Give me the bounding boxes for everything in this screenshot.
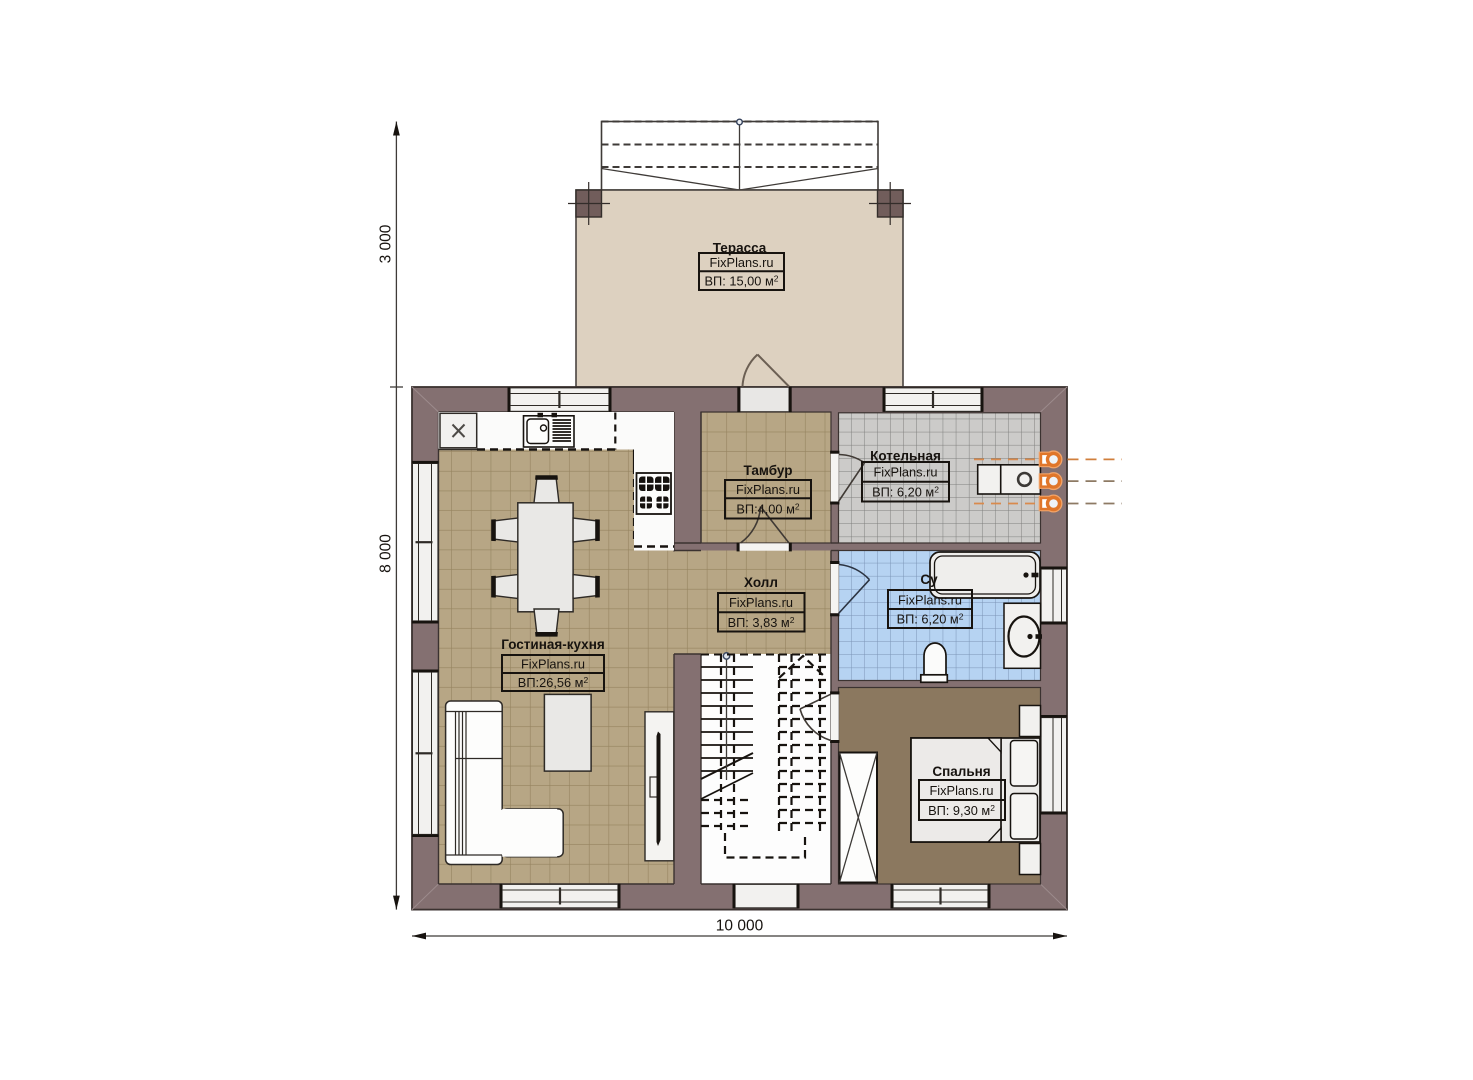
svg-text:FixPlans.ru: FixPlans.ru bbox=[873, 465, 937, 480]
svg-text:ВП: 9,30 м2: ВП: 9,30 м2 bbox=[928, 803, 995, 818]
svg-text:FixPlans.ru: FixPlans.ru bbox=[729, 595, 793, 610]
svg-text:Холл: Холл bbox=[744, 575, 778, 590]
svg-text:Спальня: Спальня bbox=[932, 764, 990, 779]
svg-text:FixPlans.ru: FixPlans.ru bbox=[521, 657, 585, 672]
svg-text:ВП: 6,20 м2: ВП: 6,20 м2 bbox=[897, 611, 964, 626]
svg-text:Тамбур: Тамбур bbox=[744, 463, 793, 478]
svg-text:ВП: 3,83 м2: ВП: 3,83 м2 bbox=[728, 615, 795, 630]
svg-text:8 000: 8 000 bbox=[378, 534, 395, 573]
svg-text:ВП: 15,00 м2: ВП: 15,00 м2 bbox=[705, 274, 779, 289]
svg-text:FixPlans.ru: FixPlans.ru bbox=[736, 482, 800, 497]
svg-text:ВП:4,00 м2: ВП:4,00 м2 bbox=[736, 501, 800, 516]
svg-text:3 000: 3 000 bbox=[378, 224, 395, 263]
svg-text:10 000: 10 000 bbox=[716, 918, 764, 935]
svg-text:FixPlans.ru: FixPlans.ru bbox=[929, 783, 993, 798]
svg-text:Су: Су bbox=[920, 572, 938, 587]
svg-text:ВП:26,56 м2: ВП:26,56 м2 bbox=[518, 675, 589, 690]
svg-text:ВП: 6,20 м2: ВП: 6,20 м2 bbox=[872, 484, 939, 499]
svg-text:FixPlans.ru: FixPlans.ru bbox=[709, 255, 773, 270]
svg-text:FixPlans.ru: FixPlans.ru bbox=[898, 593, 962, 608]
svg-text:Гостиная-кухня: Гостиная-кухня bbox=[501, 637, 604, 652]
